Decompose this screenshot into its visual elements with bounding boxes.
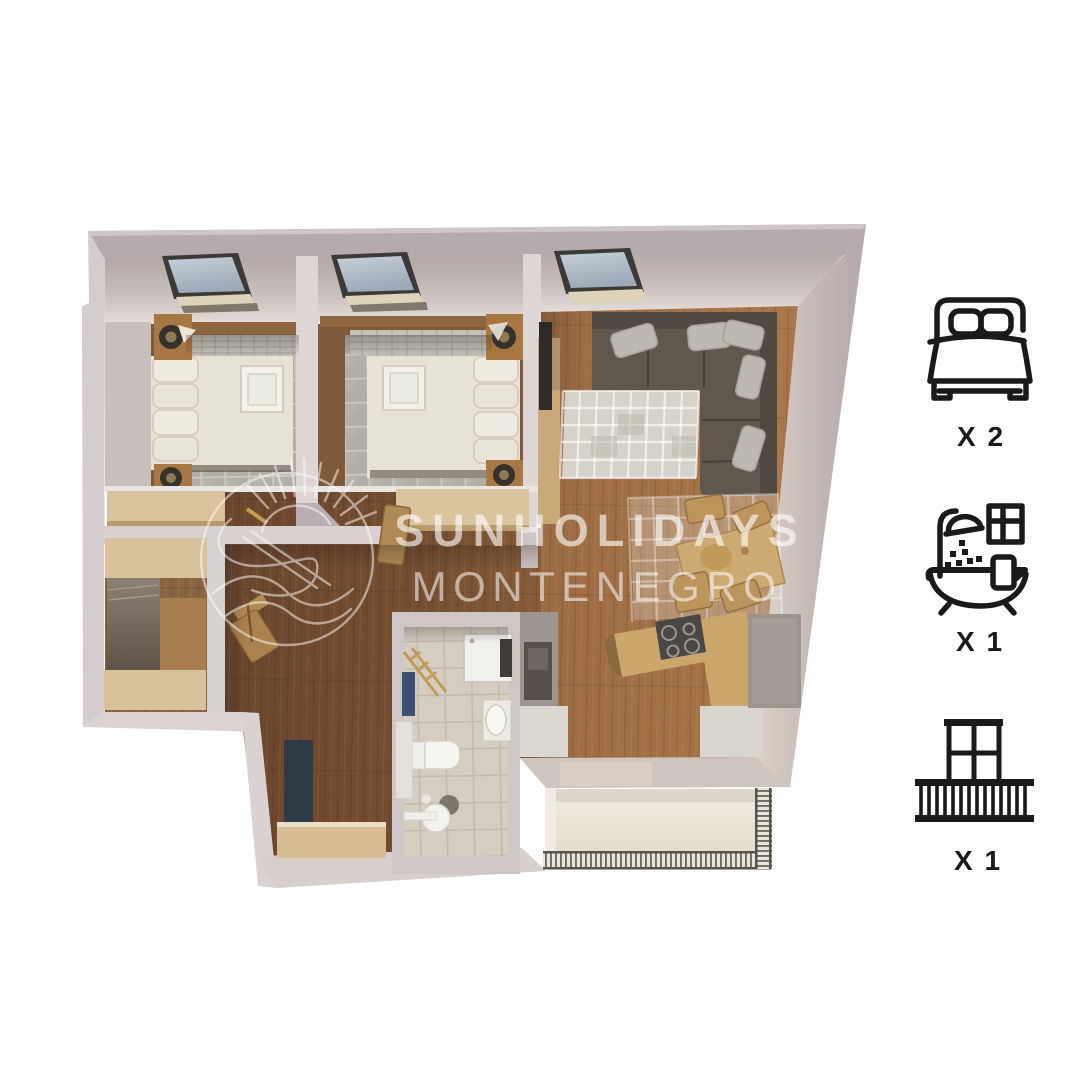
svg-text:X 1: X 1	[956, 626, 1004, 657]
svg-text:SUNHOLIDAYS: SUNHOLIDAYS	[394, 505, 805, 556]
svg-text:X 2: X 2	[957, 421, 1005, 452]
svg-text:MONTENEGRO: MONTENEGRO	[412, 563, 783, 610]
svg-text:X 1: X 1	[954, 845, 1002, 876]
